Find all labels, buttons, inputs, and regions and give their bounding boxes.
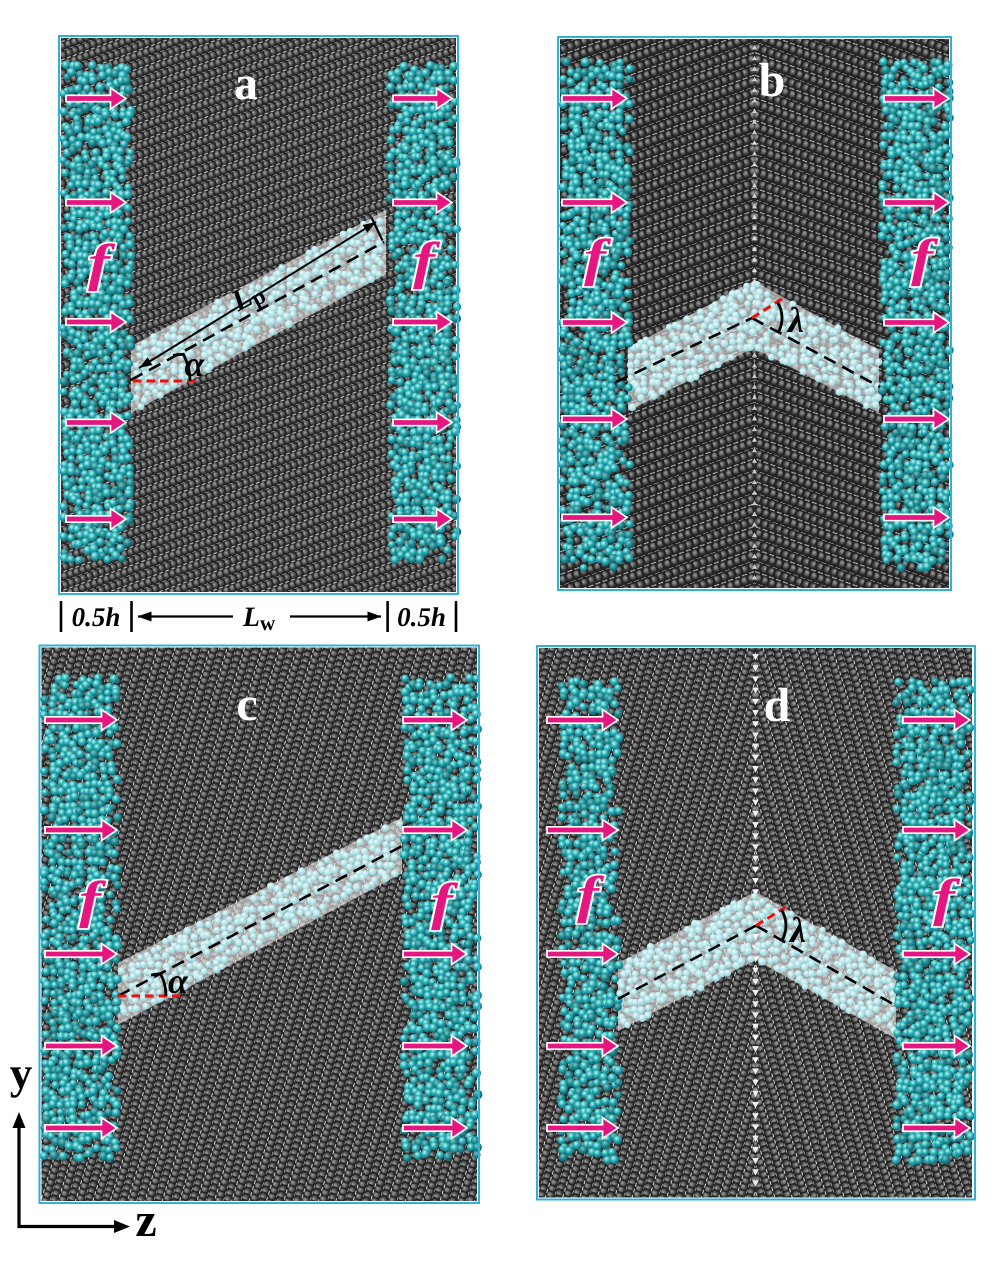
svg-text:a: a [234,57,258,110]
svg-text:0.5h: 0.5h [397,602,446,632]
svg-text:α: α [185,344,206,384]
svg-text:0.5h: 0.5h [72,602,121,632]
svg-text:b: b [759,54,786,107]
svg-text:α: α [168,961,189,1001]
svg-text:λ: λ [786,300,804,340]
svg-text:c: c [236,678,257,731]
